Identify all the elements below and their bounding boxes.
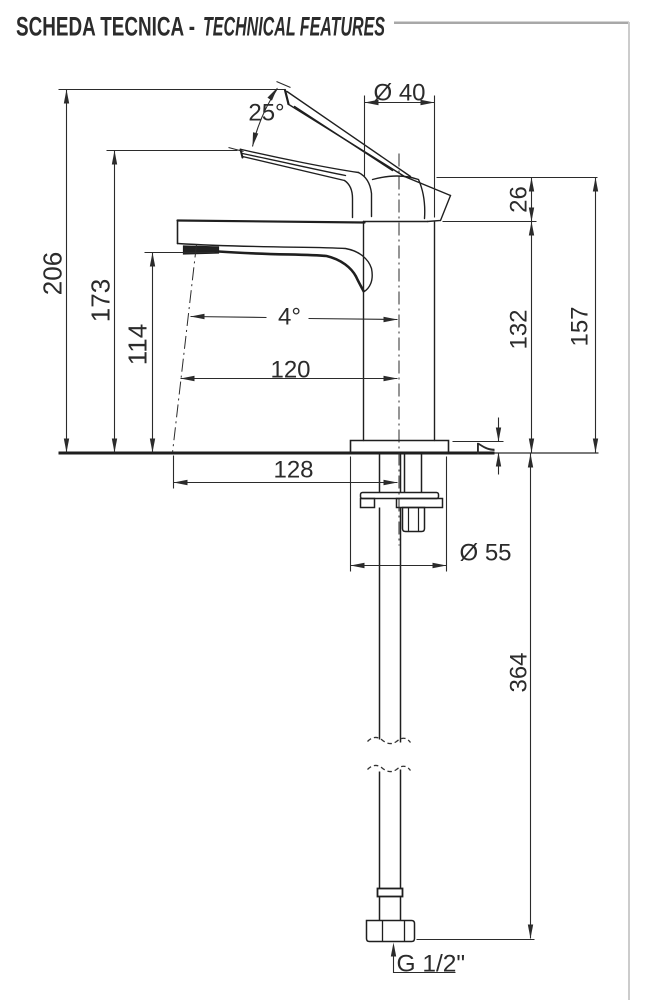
svg-text:364: 364: [506, 652, 533, 692]
svg-text:25°: 25°: [248, 100, 284, 127]
svg-text:4°: 4°: [278, 304, 301, 331]
svg-text:120: 120: [270, 357, 310, 384]
svg-text:128: 128: [273, 457, 313, 484]
svg-text:Ø 55: Ø 55: [460, 540, 512, 567]
svg-text:26: 26: [506, 186, 533, 213]
svg-text:157: 157: [567, 306, 594, 346]
svg-text:Ø 40: Ø 40: [373, 80, 425, 107]
svg-text:TECHNICAL FEATURES: TECHNICAL FEATURES: [203, 12, 385, 42]
svg-text:206: 206: [38, 252, 68, 295]
svg-text:SCHEDA TECNICA -: SCHEDA TECNICA -: [16, 12, 195, 42]
svg-text:173: 173: [86, 279, 116, 322]
svg-text:7: 7: [473, 442, 501, 456]
svg-text:114: 114: [123, 324, 153, 365]
svg-text:G 1/2": G 1/2": [397, 951, 466, 978]
svg-text:132: 132: [506, 309, 533, 349]
